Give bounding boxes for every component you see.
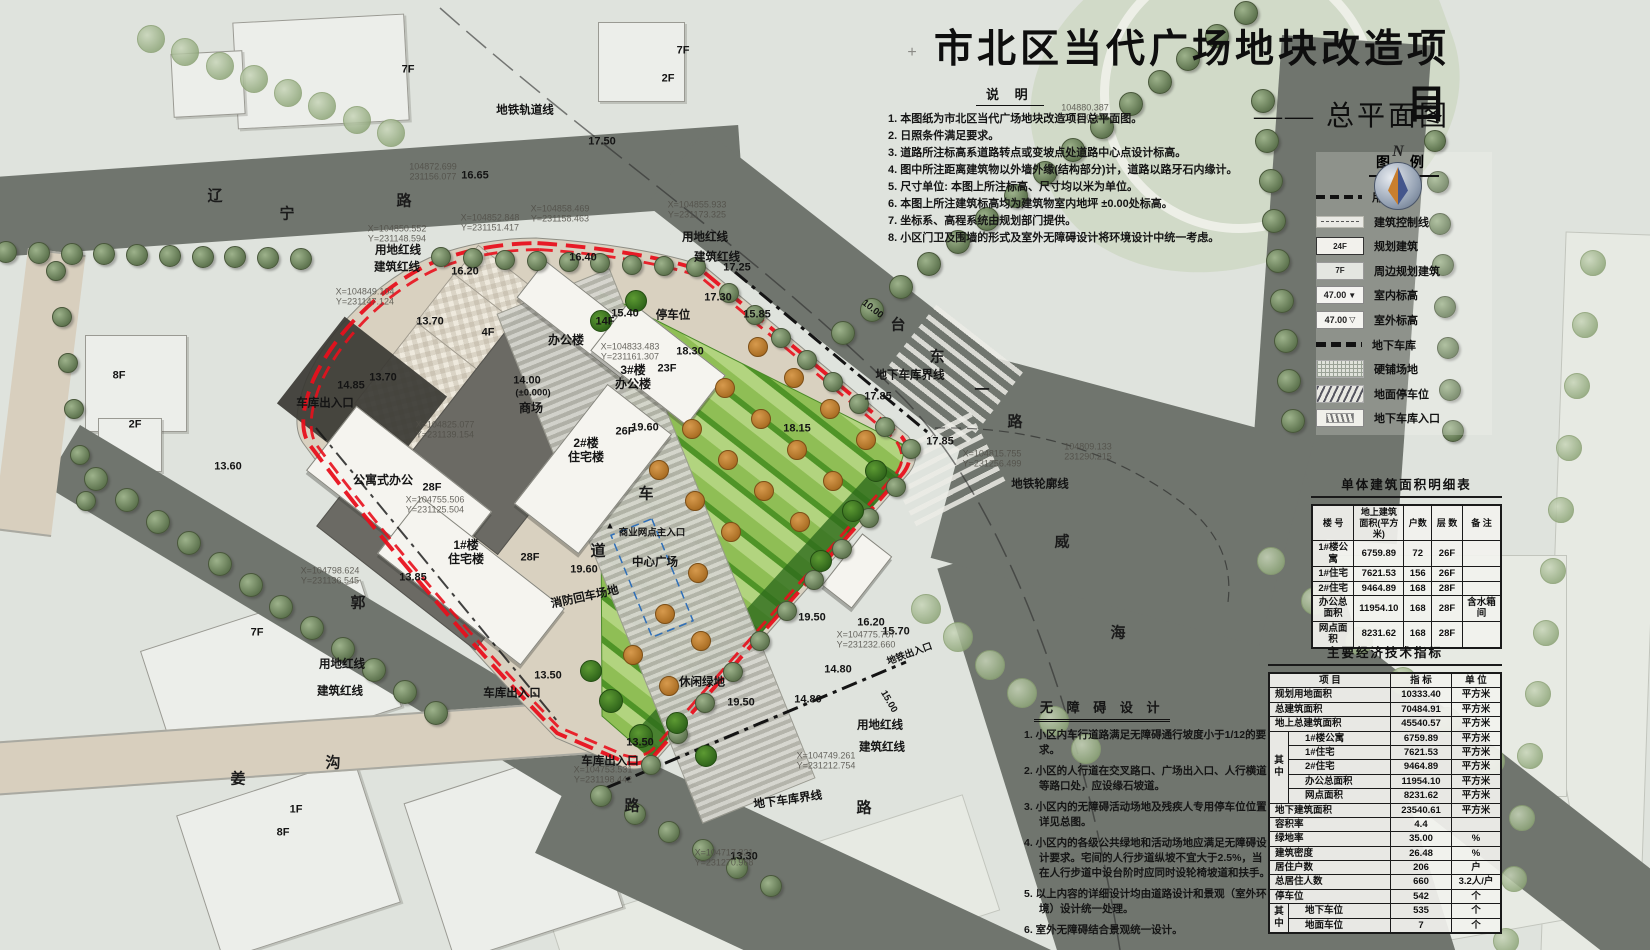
table-cell: 地上总建筑面积	[1269, 717, 1391, 731]
table-cell: 容积率	[1269, 817, 1391, 831]
table-row: 建筑密度26.48%	[1269, 846, 1501, 860]
plan-label: 104872.699 231156.077	[409, 162, 457, 183]
column-header: 项 目	[1269, 673, 1391, 688]
table-row: 其中地下车位535个	[1269, 904, 1501, 918]
plan-label: 公寓式办公	[353, 474, 413, 488]
site-plan-sheet: 辽宁路台东一路威海姜沟郭路路车道地铁轨道线车库出入口车库出入口车库出入口停车位地…	[0, 0, 1650, 950]
table-cell: 1#住宅	[1312, 567, 1354, 581]
table-cell: 停车位	[1269, 889, 1391, 903]
notes-list: 1. 本图纸为市北区当代广场地块改造项目总平面图。2. 日照条件满足要求。3. …	[888, 111, 1240, 247]
table-cell: 535	[1391, 904, 1452, 918]
plan-label: 用地红线	[857, 719, 903, 732]
table-cell: 办公总面积	[1289, 774, 1391, 788]
legend-mark: 7F	[1335, 266, 1344, 275]
list-item: 5. 以上内容的详细设计均由道路设计和景观（室外环境）设计统一处理。	[1024, 887, 1272, 917]
legend-item: 硬铺场地	[1316, 361, 1492, 377]
plan-label: X=104775.707 Y=231232.660	[837, 630, 896, 651]
plan-label: 2F	[662, 73, 675, 86]
list-item: 5. 尺寸单位: 本图上所注标高、尺寸均以米为单位。	[888, 179, 1240, 196]
table-row: 1#楼公寓6759.897226F	[1312, 541, 1501, 567]
plan-label: 13.60	[214, 461, 242, 474]
plan-label: 商业网点主入口	[619, 529, 686, 540]
plan-label: 一	[974, 381, 989, 398]
legend-items: 用地界线建筑控制线24F规划建筑7F周边规划建筑47.00▼室内标高47.00▽…	[1316, 189, 1492, 426]
table-cell: 8231.62	[1391, 789, 1452, 803]
plan-label: 7F	[677, 45, 690, 58]
plan-label: 道	[590, 542, 605, 559]
list-item: 4. 图中所注距离建筑物以外墙外缘(结构部分)计，道路以路牙石内缘计。	[888, 162, 1240, 179]
table-row: 总居住人数6603.2人/户	[1269, 875, 1501, 889]
plan-label: 15.40	[611, 308, 639, 321]
list-item: 1. 本图纸为市北区当代广场地块改造项目总平面图。	[888, 111, 1240, 128]
plan-label: 沟	[325, 754, 340, 771]
elevation-marker: ▼	[1348, 291, 1356, 300]
table-cell	[1462, 541, 1501, 567]
plan-label: X=104850.552 Y=231148.594	[368, 224, 427, 245]
table-cell: 7621.53	[1391, 745, 1452, 759]
plan-label: 7F	[251, 627, 264, 640]
plan-label: 中心广场	[632, 556, 678, 569]
plan-label: 28F	[423, 482, 442, 495]
plan-label: X=104825.077 Y=231139.154	[416, 420, 475, 441]
plan-label: 用地红线	[375, 244, 421, 257]
table-cell: 总建筑面积	[1269, 702, 1391, 716]
plan-label: 路	[396, 192, 411, 209]
plan-label: 10.00	[859, 298, 884, 321]
table-row: 1#住宅7621.53平方米	[1269, 745, 1501, 759]
boundary-icon	[1316, 195, 1362, 199]
plan-label: 地铁轨道线	[496, 104, 554, 117]
table-cell: 4.4	[1391, 817, 1452, 831]
plan-label: 15.85	[743, 309, 771, 322]
table-cell: 规划用地面积	[1269, 688, 1391, 702]
list-item: 2. 小区的人行道在交叉路口、广场出入口、人行横道等路口处，应设缘石坡道。	[1024, 764, 1272, 794]
control-icon	[1316, 216, 1364, 228]
table-cell: 26F	[1432, 567, 1463, 581]
north-compass: N	[1372, 143, 1424, 210]
plan-label: 16.40	[569, 252, 597, 265]
table-cell: 70484.91	[1391, 702, 1452, 716]
plan-label: 停车位	[656, 309, 691, 322]
table-cell: 地下建筑面积	[1269, 803, 1391, 817]
plan-label: 1F	[290, 804, 303, 817]
table-cell: 2#住宅	[1289, 760, 1391, 774]
table-row: 2#住宅9464.8916828F	[1312, 581, 1501, 595]
table-row: 2#住宅9464.89平方米	[1269, 760, 1501, 774]
legend-label: 规划建筑	[1374, 238, 1418, 254]
plan-label: X=104717.321 Y=231270.968	[695, 848, 754, 869]
area-table: 楼 号地上建筑 面积(平方米)户数层 数备 注1#楼公寓6759.897226F…	[1311, 504, 1502, 649]
list-item: 6. 本图上所注建筑标高均为建筑物室内地坪 ±0.00处标高。	[888, 196, 1240, 213]
plan-label: (±0.000)	[515, 389, 550, 400]
plan-label: 17.85	[864, 391, 892, 404]
table-row: 容积率4.4	[1269, 817, 1501, 831]
compass-needle-west	[1388, 167, 1398, 205]
plan-label: 14.80	[824, 664, 852, 677]
table-header-row: 楼 号地上建筑 面积(平方米)户数层 数备 注	[1312, 505, 1501, 541]
legend-mark: 24F	[1333, 242, 1347, 251]
plan-label: X=104852.848 Y=231151.417	[461, 213, 520, 234]
table-cell: 9464.89	[1354, 581, 1404, 595]
notes-heading: 说 明	[976, 84, 1044, 106]
plan-label: 威	[1054, 533, 1069, 550]
column-header: 楼 号	[1312, 505, 1354, 541]
plan-label: 16.65	[461, 170, 489, 183]
plan-label: 15.00	[877, 689, 898, 715]
column-header: 指 标	[1391, 673, 1452, 688]
econ-table-block: 主要经济技术指标 项 目指 标单 位规划用地面积10333.40平方米总建筑面积…	[1268, 642, 1502, 934]
table-row: 地上总建筑面积45540.57平方米	[1269, 717, 1501, 731]
table-cell: 平方米	[1452, 803, 1502, 817]
table-row: 规划用地面积10333.40平方米	[1269, 688, 1501, 702]
plan-label: 郭	[350, 594, 365, 611]
plan-label: 车库出入口	[483, 687, 541, 700]
table-cell: 个	[1452, 918, 1502, 933]
econ-table: 项 目指 标单 位规划用地面积10333.40平方米总建筑面积70484.91平…	[1268, 672, 1502, 934]
table-cell: 1#楼公寓	[1312, 541, 1354, 567]
plan-label: 17.50	[588, 136, 616, 149]
econ-table-title: 主要经济技术指标	[1268, 642, 1502, 666]
table-cell: 含水箱间	[1462, 595, 1501, 621]
plan-label: 17.25	[723, 262, 751, 275]
plan-label: X=104833.483 Y=231161.307	[601, 342, 660, 363]
indoor-icon: 47.00▼	[1316, 286, 1364, 304]
plan-label: 台	[890, 316, 905, 333]
plan-label: 17.85	[926, 436, 954, 449]
table-cell: %	[1452, 832, 1502, 846]
table-cell: 6759.89	[1354, 541, 1404, 567]
table-cell: 28F	[1432, 581, 1463, 595]
legend-item: 47.00▼室内标高	[1316, 287, 1492, 303]
plan-label: 用地红线	[319, 658, 365, 671]
table-cell: 45540.57	[1391, 717, 1452, 731]
list-item: 8. 小区门卫及围墙的形式及室外无障碍设计将环境设计中统一考虑。	[888, 230, 1240, 247]
table-cell	[1462, 567, 1501, 581]
plan-label: X=104755.506 Y=231125.504	[406, 495, 465, 516]
table-cell: 平方米	[1452, 688, 1502, 702]
plan-label: 建筑红线	[374, 261, 420, 274]
table-cell: 办公总面积	[1312, 595, 1354, 621]
table-cell: 地面车位	[1289, 918, 1391, 933]
area-table-title: 单体建筑面积明细表	[1311, 474, 1502, 498]
plan-label: 14.85	[337, 380, 365, 393]
plan-label: 23F	[658, 363, 677, 376]
table-row: 停车位542个	[1269, 889, 1501, 903]
parking-icon	[1316, 385, 1364, 403]
plan-label: 18.15	[783, 423, 811, 436]
plan-label: X=104858.469 Y=231158.463	[531, 204, 590, 225]
plan-label: 休闲绿地	[679, 676, 725, 689]
table-cell: 168	[1404, 581, 1432, 595]
entry-icon	[1316, 409, 1364, 427]
north-label: N	[1372, 143, 1424, 161]
legend-label: 地下车库入口	[1374, 410, 1440, 426]
legend-item: 建筑控制线	[1316, 214, 1492, 230]
column-header: 备 注	[1462, 505, 1501, 541]
table-cell: 35.00	[1391, 832, 1452, 846]
plan-label: 13.85	[399, 572, 427, 585]
plan-label: 19.50	[727, 697, 755, 710]
table-cell: 平方米	[1452, 731, 1502, 745]
table-cell: %	[1452, 846, 1502, 860]
table-row: 地下建筑面积23540.61平方米	[1269, 803, 1501, 817]
table-cell: 2#住宅	[1312, 581, 1354, 595]
compass-needle-east	[1398, 167, 1408, 205]
plan-label: 建筑红线	[317, 685, 363, 698]
table-row: 地面车位7个	[1269, 918, 1501, 933]
table-row: 居住户数206户	[1269, 861, 1501, 875]
plan-label: 2F	[129, 419, 142, 432]
accessibility-heading: 无 障 碍 设 计	[1034, 697, 1170, 722]
plan-label: 宁	[279, 205, 294, 222]
plan-label: X=104753.531 Y=231198.442	[574, 765, 633, 786]
legend-label: 地下车库	[1372, 337, 1416, 353]
plan-label: X=104855.933 Y=231173.325	[668, 200, 727, 221]
table-cell: 28F	[1432, 595, 1463, 621]
table-cell: 72	[1404, 541, 1432, 567]
plan-label: X=104815.755 Y=231256.499	[963, 449, 1022, 470]
plan-label: 17.30	[704, 292, 732, 305]
table-cell: 206	[1391, 861, 1452, 875]
list-item: 7. 坐标系、高程系统由规划部门提供。	[888, 213, 1240, 230]
plan-label: 18.30	[676, 346, 704, 359]
plan-label: 路	[856, 799, 871, 816]
table-cell: 平方米	[1452, 760, 1502, 774]
area-table-block: 单体建筑面积明细表 楼 号地上建筑 面积(平方米)户数层 数备 注1#楼公寓67…	[1311, 474, 1502, 649]
plan-label: 13.70	[369, 372, 397, 385]
plan-label: 用地红线	[682, 231, 728, 244]
list-item: 3. 道路所注标高系道路转点或变坡点处道路中心点设计标高。	[888, 145, 1240, 162]
list-item: 3. 小区内的无障碍活动场地及残疾人专用停车位位置详见总图。	[1024, 800, 1272, 830]
plan-label: 路	[1007, 413, 1022, 430]
table-cell: 平方米	[1452, 745, 1502, 759]
outdoor-icon: 47.00▽	[1316, 311, 1364, 329]
table-cell: 26.48	[1391, 846, 1452, 860]
planned-icon: 24F	[1316, 237, 1364, 255]
table-row: 总建筑面积70484.91平方米	[1269, 702, 1501, 716]
table-cell: 居住户数	[1269, 861, 1391, 875]
table-cell: 1#住宅	[1289, 745, 1391, 759]
table-cell: 平方米	[1452, 717, 1502, 731]
accessibility-block: 无 障 碍 设 计 1. 小区内车行道路满足无障碍通行坡度小于1/12的要求。2…	[1024, 697, 1272, 938]
plan-label: 3#楼 办公楼	[615, 364, 651, 392]
elevation-marker: ▽	[1349, 315, 1355, 324]
plan-label: X=104849.104 Y=231147.124	[336, 287, 395, 308]
plan-label: 消防回车场地	[550, 584, 620, 611]
table-cell: 11954.10	[1391, 774, 1452, 788]
legend-label: 建筑控制线	[1374, 214, 1429, 230]
list-item: 6. 室外无障碍结合景观统一设计。	[1024, 923, 1272, 938]
list-item: 2. 日照条件满足要求。	[888, 128, 1240, 145]
table-cell: 1#楼公寓	[1289, 731, 1391, 745]
plan-label: 办公楼	[548, 334, 584, 348]
legend-item: 地下车库入口	[1316, 410, 1492, 426]
legend-mark: 47.00	[1325, 315, 1348, 325]
table-cell: 绿地率	[1269, 832, 1391, 846]
legend-label: 室内标高	[1374, 287, 1418, 303]
table-cell: 10333.40	[1391, 688, 1452, 702]
plan-label: 地下车库界线	[876, 369, 945, 382]
plan-label: 28F	[521, 552, 540, 565]
plan-label: 海	[1110, 624, 1125, 641]
table-header-row: 项 目指 标单 位	[1269, 673, 1501, 688]
surround-icon: 7F	[1316, 262, 1364, 280]
plan-label: 13.50	[534, 670, 562, 683]
plan-label: 辽	[207, 187, 222, 204]
legend-label: 硬铺场地	[1374, 361, 1418, 377]
table-cell: 3.2人/户	[1452, 875, 1502, 889]
table-cell	[1452, 817, 1502, 831]
notes-block: 说 明 1. 本图纸为市北区当代广场地块改造项目总平面图。2. 日照条件满足要求…	[888, 84, 1240, 247]
table-row: 其中1#楼公寓6759.89平方米	[1269, 731, 1501, 745]
plan-label: 姜	[230, 770, 245, 787]
list-item: 4. 小区内的各级公共绿地和活动场地应满足无障碍设计要求。宅间的人行步道纵坡不宜…	[1024, 836, 1272, 881]
legend-label: 室外标高	[1374, 312, 1418, 328]
table-row: 绿地率35.00%	[1269, 832, 1501, 846]
legend-label: 周边规划建筑	[1374, 263, 1440, 279]
plan-label: ▲	[605, 522, 614, 533]
garage-icon	[1316, 342, 1362, 347]
accessibility-list: 1. 小区内车行道路满足无障碍通行坡度小于1/12的要求。2. 小区的人行道在交…	[1024, 728, 1272, 938]
column-header: 层 数	[1432, 505, 1463, 541]
table-cell: 6759.89	[1391, 731, 1452, 745]
legend-item: 地下车库	[1316, 337, 1492, 353]
table-cell: 地下车位	[1289, 904, 1391, 918]
compass-icon	[1374, 162, 1422, 210]
table-cell: 个	[1452, 889, 1502, 903]
table-cell: 平方米	[1452, 774, 1502, 788]
table-cell: 建筑密度	[1269, 846, 1391, 860]
plan-label: 7F	[402, 64, 415, 77]
plan-label: 2#楼 住宅楼	[568, 437, 604, 465]
legend-mark: 47.00	[1324, 290, 1347, 300]
plan-label: X=104798.624 Y=231136.545	[301, 566, 360, 587]
table-row: 办公总面积11954.10平方米	[1269, 774, 1501, 788]
table-cell: 个	[1452, 904, 1502, 918]
paved-icon	[1316, 360, 1364, 378]
table-cell: 660	[1391, 875, 1452, 889]
column-header: 地上建筑 面积(平方米)	[1354, 505, 1404, 541]
legend-item: 7F周边规划建筑	[1316, 263, 1492, 279]
plan-label: 13.50	[626, 737, 654, 750]
table-cell: 平方米	[1452, 702, 1502, 716]
plan-label: 104809.133 231290.215	[1064, 442, 1112, 463]
plan-label: 路	[624, 797, 639, 814]
plan-label: 19.50	[798, 612, 826, 625]
legend-item: 24F规划建筑	[1316, 238, 1492, 254]
table-cell: 156	[1404, 567, 1432, 581]
plan-label: 4F	[482, 327, 495, 340]
plan-label: 8F	[277, 827, 290, 840]
plan-label: 14.80	[794, 694, 822, 707]
control-glyph	[1321, 221, 1359, 222]
table-cell: 542	[1391, 889, 1452, 903]
list-item: 1. 小区内车行道路满足无障碍通行坡度小于1/12的要求。	[1024, 728, 1272, 758]
legend-label: 地面停车位	[1374, 386, 1429, 402]
table-cell: 168	[1404, 595, 1432, 621]
plan-label: 车库出入口	[296, 397, 354, 410]
plan-label: 东	[929, 348, 944, 365]
table-cell: 7	[1391, 918, 1452, 933]
plan-label: 19.60	[631, 422, 659, 435]
column-header: 单 位	[1452, 673, 1502, 688]
plan-label: 8F	[113, 370, 126, 383]
table-cell: 网点面积	[1289, 789, 1391, 803]
table-cell: 23540.61	[1391, 803, 1452, 817]
table-cell	[1462, 581, 1501, 595]
column-header: 户数	[1404, 505, 1432, 541]
table-row: 办公总面积11954.1016828F含水箱间	[1312, 595, 1501, 621]
legend-item: 地面停车位	[1316, 386, 1492, 402]
plan-label: 16.20	[451, 266, 479, 279]
plan-label: 车	[638, 485, 653, 502]
plan-label: 16.20	[857, 617, 885, 630]
plan-label: 地下车库界线	[753, 790, 823, 813]
table-row: 网点面积8231.62平方米	[1269, 789, 1501, 803]
table-cell: 户	[1452, 861, 1502, 875]
table-cell: 平方米	[1452, 789, 1502, 803]
plan-label: 19.60	[570, 564, 598, 577]
plan-label: X=104749.261 Y=231212.754	[797, 751, 856, 772]
entry-glyph	[1326, 413, 1354, 423]
plan-label: 1#楼 住宅楼	[448, 539, 484, 567]
table-cell: 26F	[1432, 541, 1463, 567]
table-cell: 9464.89	[1391, 760, 1452, 774]
plan-label: 商场	[519, 402, 543, 416]
table-cell: 总居住人数	[1269, 875, 1391, 889]
table-row: 1#住宅7621.5315626F	[1312, 567, 1501, 581]
plan-label: 13.70	[416, 316, 444, 329]
legend-item: 47.00▽室外标高	[1316, 312, 1492, 328]
plan-label: 建筑红线	[859, 741, 905, 754]
table-cell: 7621.53	[1354, 567, 1404, 581]
plan-label: 14.00	[513, 375, 541, 388]
table-cell: 11954.10	[1354, 595, 1404, 621]
plan-label: 地铁轮廓线	[1011, 478, 1069, 491]
